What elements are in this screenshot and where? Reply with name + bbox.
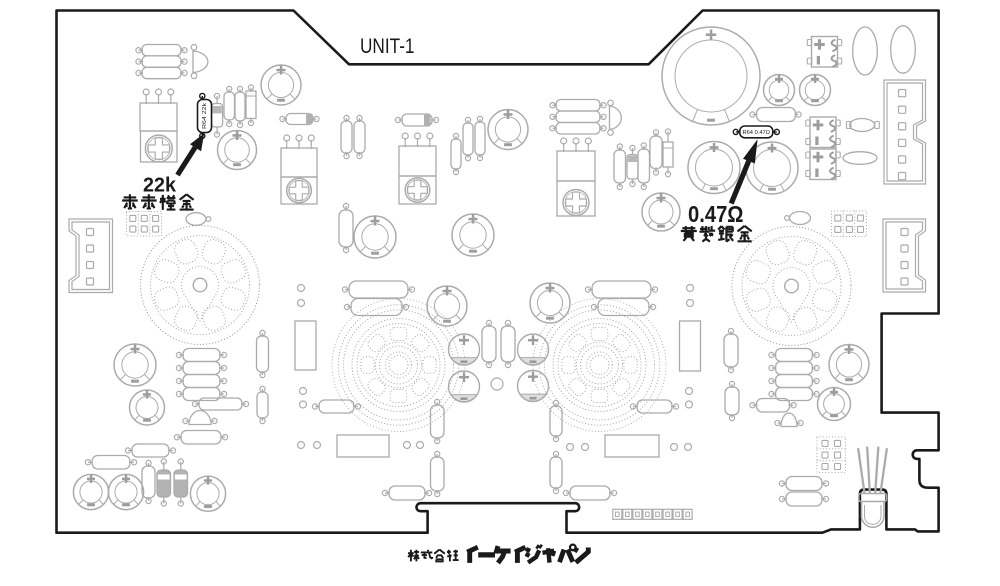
svg-text:22k: 22k bbox=[143, 173, 177, 196]
svg-text:R64 22k: R64 22k bbox=[202, 103, 208, 129]
svg-text:0.47Ω: 0.47Ω bbox=[688, 201, 744, 227]
svg-text:R64 0.47Ω: R64 0.47Ω bbox=[743, 130, 771, 136]
svg-text:UNIT-1: UNIT-1 bbox=[360, 33, 415, 58]
